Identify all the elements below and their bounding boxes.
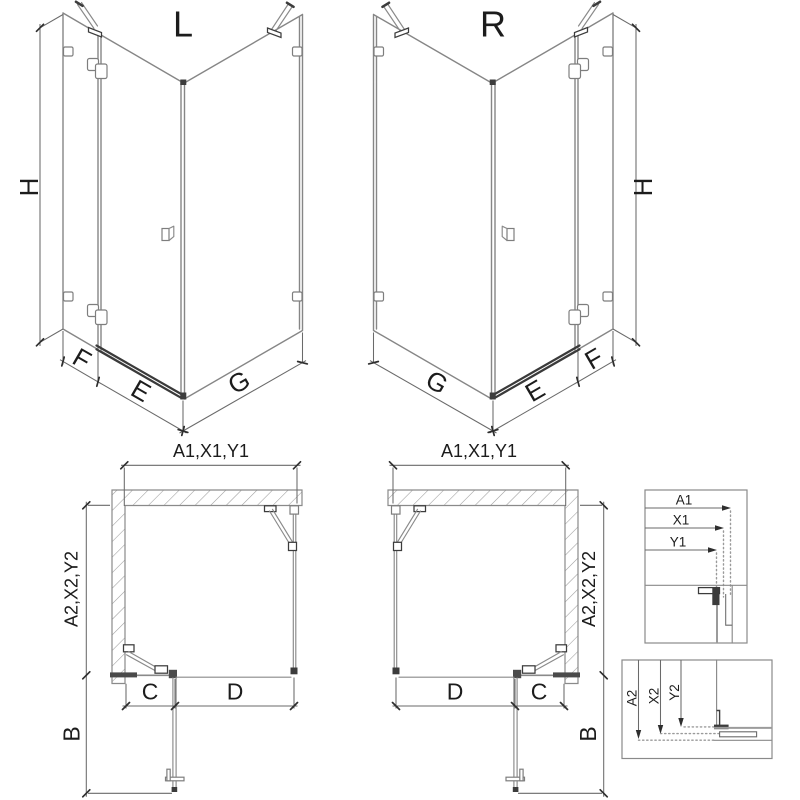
label-fixed-left: F [68, 342, 97, 376]
label-detail-x1: X1 [673, 513, 690, 528]
detail-box-width [645, 490, 747, 643]
label-side-left: G [223, 364, 256, 400]
label-plan-right-c: C [531, 679, 548, 705]
label-side-right: G [421, 364, 454, 400]
label-height-left: H [14, 178, 44, 197]
label-detail-x2: X2 [647, 688, 662, 705]
label-plan-right-d: D [447, 679, 464, 705]
label-plan-left-c: C [142, 679, 159, 705]
shower-enclosure-technical-diagram: L H F E G R H G E F A1,X1,Y1 A2,X2,Y2 C … [0, 0, 800, 800]
label-detail-a1: A1 [676, 493, 693, 508]
label-plan-left-d: D [227, 679, 244, 705]
wall-hatch-plan-left [112, 490, 302, 684]
wall-hatch-plan-right [388, 490, 578, 684]
label-plan-left-b: B [59, 726, 85, 741]
label-door-left: E [126, 373, 156, 408]
label-variant-left: L [173, 4, 193, 45]
label-detail-y1: Y1 [670, 535, 687, 550]
detail-box-depth [622, 660, 772, 759]
label-door-right: E [520, 373, 550, 408]
label-variant-right: R [480, 4, 506, 45]
label-plan-right-b: B [575, 726, 601, 741]
label-detail-a2: A2 [625, 690, 640, 707]
label-plan-right-depth: A2,X2,Y2 [579, 551, 599, 627]
label-plan-left-width: A1,X1,Y1 [173, 441, 249, 461]
label-detail-y2: Y2 [667, 684, 682, 701]
label-plan-left-depth: A2,X2,Y2 [61, 551, 81, 627]
label-height-right: H [628, 178, 658, 197]
label-plan-right-width: A1,X1,Y1 [441, 441, 517, 461]
label-fixed-right: F [580, 342, 609, 376]
